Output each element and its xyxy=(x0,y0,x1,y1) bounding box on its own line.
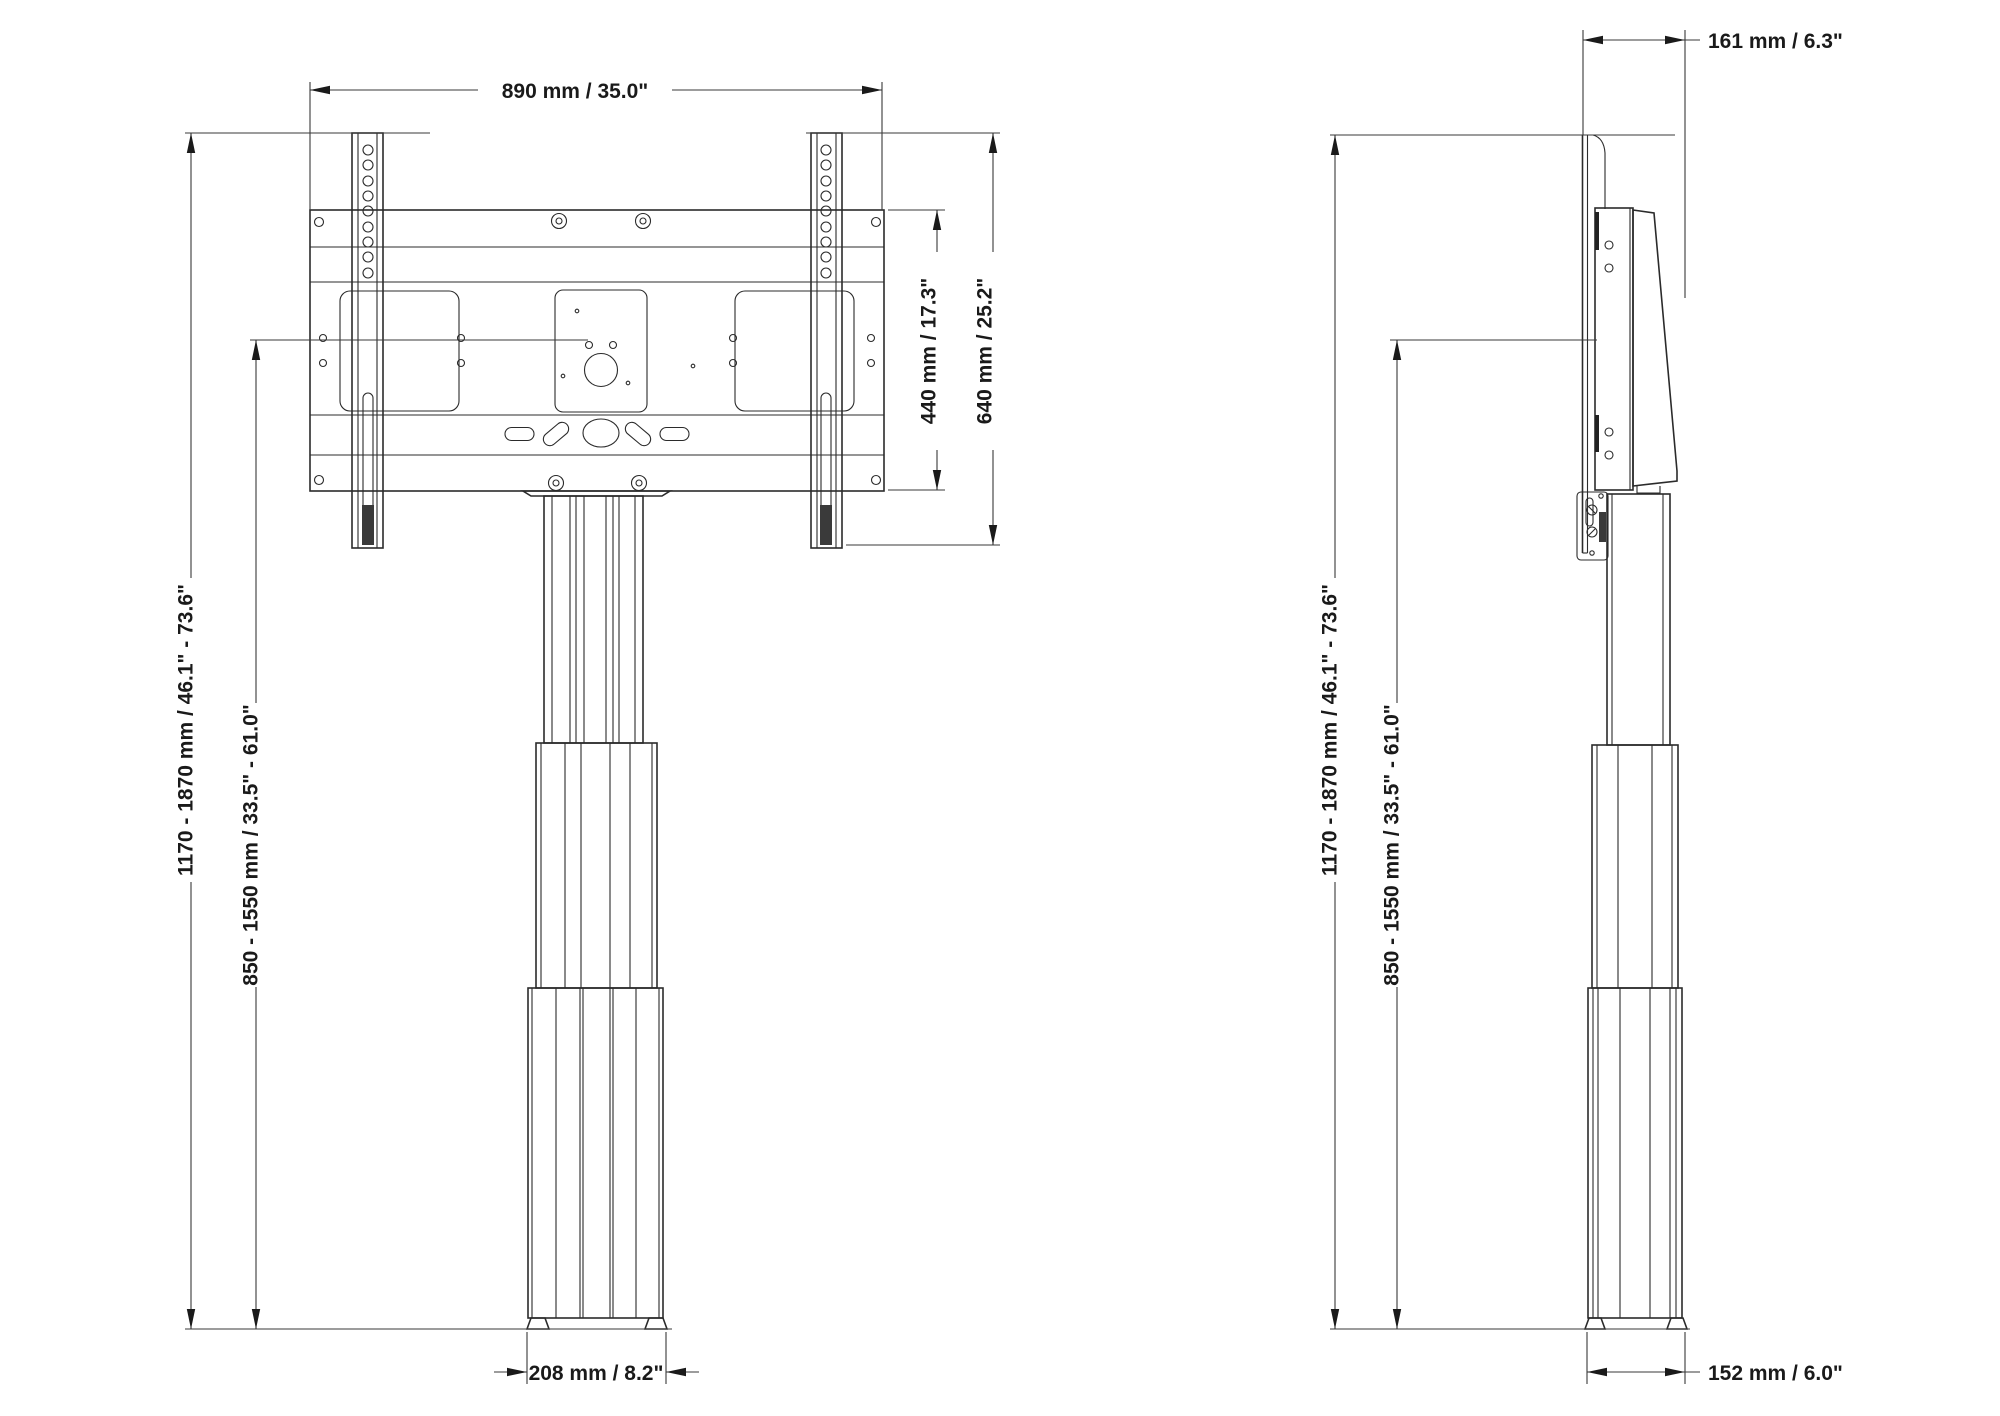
dim-center-height-front: 850 - 1550 mm / 33.5" - 61.0" xyxy=(235,340,269,1329)
lift-column-front xyxy=(523,491,670,1329)
support-wedge xyxy=(1633,210,1677,493)
dim-overall-height-side-label: 1170 - 1870 mm / 46.1" - 73.6" xyxy=(1319,584,1342,876)
technical-drawing-page: 890 mm / 35.0" 440 mm / 17.3" 640 mm / 2… xyxy=(0,0,2000,1416)
dim-base-width: 208 mm / 8.2" xyxy=(494,1362,699,1385)
dim-depth-label: 161 mm / 6.3" xyxy=(1708,30,1843,53)
dim-center-height-side: 850 - 1550 mm / 33.5" - 61.0" xyxy=(1376,340,1410,1329)
dim-plate-height-label: 440 mm / 17.3" xyxy=(918,278,941,425)
lift-mechanism xyxy=(1577,492,1608,560)
dim-base-depth-label: 152 mm / 6.0" xyxy=(1708,1362,1843,1385)
dim-overall-height-front-label: 1170 - 1870 mm / 46.1" - 73.6" xyxy=(175,584,198,876)
foot-left xyxy=(527,1318,549,1329)
vesa-rail-right xyxy=(811,133,842,548)
dim-overall-height-side: 1170 - 1870 mm / 46.1" - 73.6" xyxy=(1314,135,1348,1329)
plate-profile-side xyxy=(1595,208,1633,490)
dimension-lines: 890 mm / 35.0" 440 mm / 17.3" 640 mm / 2… xyxy=(170,30,1843,1385)
dim-base-width-label: 208 mm / 8.2" xyxy=(529,1362,664,1385)
front-view xyxy=(310,133,884,1329)
dim-overall-height-front: 1170 - 1870 mm / 46.1" - 73.6" xyxy=(170,133,204,1329)
dim-bracket-height-label: 640 mm / 25.2" xyxy=(974,278,997,425)
mount-plate xyxy=(310,210,884,491)
dim-depth: 161 mm / 6.3" xyxy=(1583,30,1843,53)
foot-right xyxy=(645,1318,667,1329)
plate-screws xyxy=(549,214,651,491)
dim-center-height-side-label: 850 - 1550 mm / 33.5" - 61.0" xyxy=(1381,704,1404,985)
lift-column-side xyxy=(1585,494,1687,1329)
tv-lift-stand-drawing: 890 mm / 35.0" 440 mm / 17.3" 640 mm / 2… xyxy=(0,0,2000,1416)
dim-center-height-front-label: 850 - 1550 mm / 33.5" - 61.0" xyxy=(240,704,263,985)
dim-base-depth: 152 mm / 6.0" xyxy=(1587,1362,1843,1385)
dim-mount-width-label: 890 mm / 35.0" xyxy=(502,80,649,103)
foot-side-front xyxy=(1585,1318,1605,1329)
side-view xyxy=(1577,135,1687,1329)
dim-plate-height: 440 mm / 17.3" xyxy=(914,210,948,490)
cable-slots xyxy=(505,419,689,448)
foot-side-back xyxy=(1667,1318,1687,1329)
dim-bracket-height: 640 mm / 25.2" xyxy=(970,133,1004,545)
dim-mount-width: 890 mm / 35.0" xyxy=(310,74,882,106)
